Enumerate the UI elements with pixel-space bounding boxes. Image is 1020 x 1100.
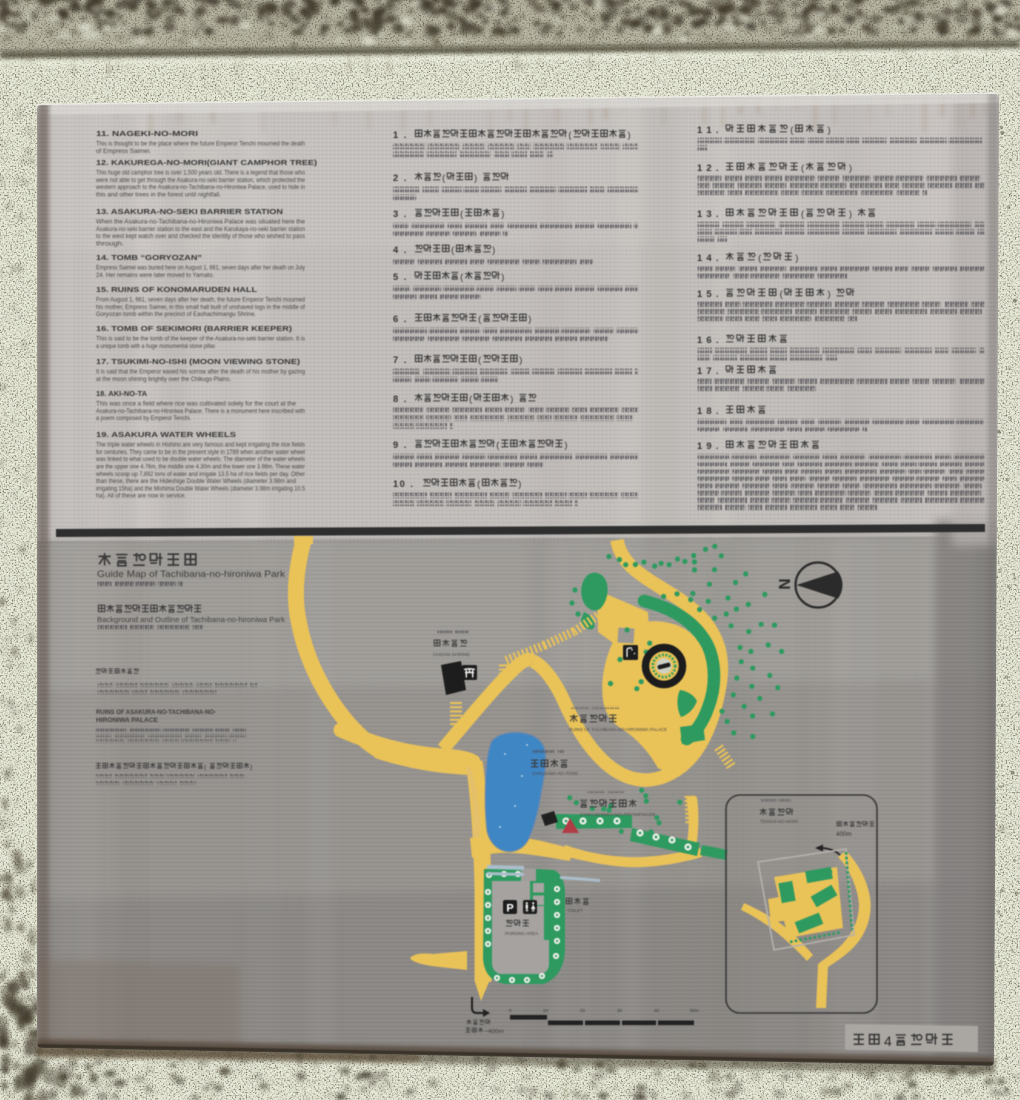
svg-text:10 .: 10 . <box>393 479 415 489</box>
svg-text:8 .: 8 . <box>393 394 408 404</box>
svg-text:400m: 400m <box>836 831 851 838</box>
svg-text:): ) <box>510 394 513 404</box>
svg-text:1 9 .: 1 9 . <box>697 440 719 451</box>
svg-text:CHOAN SHRINE: CHOAN SHRINE <box>433 652 470 657</box>
svg-text:at the moon shining brightly o: at the moon shining brightly over the Ch… <box>96 376 231 383</box>
svg-text:are the upper one 4.76m, the m: are the upper one 4.76m, the middle one … <box>96 464 305 471</box>
svg-text:When the Asakura-no-Tachibana-: When the Asakura-no-Tachibana-no-Hironiw… <box>96 219 305 226</box>
svg-text:The triple water wheels in His: The triple water wheels in Hishino are v… <box>96 442 305 449</box>
svg-text:a poem composed by Emperor Ten: a poem composed by Emperor Tenchi. <box>96 415 191 422</box>
svg-text:TOILET: TOILET <box>567 908 583 913</box>
svg-text:30: 30 <box>617 1008 623 1013</box>
svg-text:PARKING AREA: PARKING AREA <box>505 931 538 936</box>
svg-text:16. TOMB OF SEKIMORI (BARRIER: 16. TOMB OF SEKIMORI (BARRIER KEEPER) <box>96 324 293 333</box>
svg-text:1 4 .: 1 4 . <box>697 252 719 263</box>
svg-text:12. KAKUREGA-NO-MORI(GIANT CAM: 12. KAKUREGA-NO-MORI(GIANT CAMPHOR TREE) <box>96 158 318 167</box>
svg-text:1 2 .: 1 2 . <box>697 162 719 173</box>
svg-text:ha). All of these are now in s: ha). All of these are now in service. <box>96 493 186 500</box>
svg-text:1 .: 1 . <box>393 130 408 140</box>
svg-text:CHIKUSHIMAI-NO-PROMENADE: CHIKUSHIMAI-NO-PROMENADE <box>580 812 656 817</box>
svg-text:): ) <box>518 479 521 489</box>
svg-text:From August 1, 661, seven days: From August 1, 661, seven days after her… <box>96 297 305 304</box>
svg-text:1 7 .: 1 7 . <box>697 365 719 376</box>
svg-text:13. ASAKURA-NO-SEKI BARRIER ST: 13. ASAKURA-NO-SEKI BARRIER STATION <box>96 207 283 216</box>
svg-text:Goryozan tomb within the preci: Goryozan tomb within the precinct of Eao… <box>96 311 256 318</box>
svg-text:): ) <box>501 272 504 282</box>
svg-text:This is thought to be the plac: This is thought to be the place where th… <box>96 141 305 148</box>
svg-text:RUINS OF ASAKURA-NO-TACHIBANA-: RUINS OF ASAKURA-NO-TACHIBANA-NO- <box>96 709 216 716</box>
svg-text:): ) <box>564 440 567 450</box>
svg-text:15. RUINS OF KONOMARUDEN HALL: 15. RUINS OF KONOMARUDEN HALL <box>96 285 257 294</box>
svg-text:4 .: 4 . <box>393 245 408 255</box>
svg-text:western approach to the Asakur: western approach to the Asakura-no-Tachi… <box>95 184 305 191</box>
svg-text:HIRONIWA PALACE: HIRONIWA PALACE <box>96 717 159 724</box>
svg-text:7 .: 7 . <box>393 355 408 365</box>
svg-text:his mother, Empress Saimei, in: his mother, Empress Saimei, in this smal… <box>96 304 305 311</box>
svg-text:40: 40 <box>654 1008 660 1013</box>
svg-text:irrigating 15ha) and the Mishi: irrigating 15ha) and the Mishima Double … <box>96 485 305 492</box>
svg-text:): ) <box>519 355 522 365</box>
svg-text:1 5 .: 1 5 . <box>697 288 719 299</box>
svg-text:This was once a field where ri: This was once a field where rice was cul… <box>96 401 296 408</box>
svg-text:19. ASAKURA WATER WHEELS: 19. ASAKURA WATER WHEELS <box>96 430 236 439</box>
svg-text:a unique tomb with a huge monu: a unique tomb with a huge monumental sto… <box>96 343 216 350</box>
svg-text:24. Her remains were later mov: 24. Her remains were later moved to Yama… <box>96 272 214 279</box>
svg-text:~400m: ~400m <box>484 1029 504 1035</box>
svg-text:20: 20 <box>580 1008 586 1013</box>
svg-text:It is said that the Emperor ea: It is said that the Emperor eased his so… <box>96 369 305 376</box>
svg-text:N: N <box>777 578 794 589</box>
svg-text:1 1 .: 1 1 . <box>697 124 719 135</box>
svg-text:17. TSUKIMI-NO-ISHI (MOON VIEW: 17. TSUKIMI-NO-ISHI (MOON VIEWING STONE) <box>96 357 301 366</box>
svg-text:wheels scoop up 7,892 tons of: wheels scoop up 7,892 tons of water and … <box>95 471 305 478</box>
svg-text:9 .: 9 . <box>393 440 408 450</box>
svg-text:): ) <box>492 245 495 255</box>
svg-text:6 .: 6 . <box>393 314 408 324</box>
svg-text:): ) <box>849 162 852 173</box>
svg-text:Asakura-no-seki barrier statio: Asakura-no-seki barrier station to the e… <box>96 226 305 233</box>
svg-text:50m: 50m <box>690 1008 699 1013</box>
svg-text:1 6 .: 1 6 . <box>697 334 719 345</box>
svg-text:than these, there are the Hide: than these, there are the Hideshige Doub… <box>96 478 296 485</box>
svg-text:TENSHI-NO-MORI: TENSHI-NO-MORI <box>760 819 798 824</box>
svg-text:3 .: 3 . <box>393 209 408 219</box>
svg-text:1 8 .: 1 8 . <box>697 405 719 416</box>
svg-text:RUINS OF TACHIBANA-NO-HIRONIWA: RUINS OF TACHIBANA-NO-HIRONIWA PALACE <box>569 727 667 732</box>
svg-text:P: P <box>506 903 513 915</box>
svg-text:5 .: 5 . <box>393 272 408 282</box>
svg-text:): ) <box>250 764 252 771</box>
svg-text:): ) <box>827 288 830 299</box>
svg-text:This huge old camphor tree is: This huge old camphor tree is over 1,500… <box>96 170 305 177</box>
svg-text:): ) <box>627 130 630 140</box>
svg-text:): ) <box>528 314 531 324</box>
svg-text:Empress Saimei was buried here: Empress Saimei was buried here on August… <box>96 265 306 272</box>
svg-text:to the west kept watch over an: to the west kept watch over and checked … <box>96 233 305 240</box>
svg-text:14. TOMB “GORYOZAN”: 14. TOMB “GORYOZAN” <box>96 253 202 262</box>
svg-text:1 3 .: 1 3 . <box>697 208 719 219</box>
svg-text:4: 4 <box>884 1033 892 1049</box>
svg-text:2 .: 2 . <box>393 173 408 183</box>
svg-text:Guide Map of Tachibana-no-hiro: Guide Map of Tachibana-no-hironiwa Park <box>97 569 286 579</box>
svg-text:were not able to get through t: were not able to get through the Asakura… <box>95 177 305 184</box>
svg-text:was linked to what used to be: was linked to what used to be double wat… <box>95 456 305 463</box>
svg-text:SARUSAWA-NO POND: SARUSAWA-NO POND <box>532 771 579 776</box>
svg-text:): ) <box>501 209 504 219</box>
svg-text:): ) <box>474 173 477 183</box>
svg-text:11. NAGEKI-NO-MORI: 11. NAGEKI-NO-MORI <box>96 129 198 138</box>
svg-text:18. AKI-NO-TA: 18. AKI-NO-TA <box>96 389 148 398</box>
svg-text:10: 10 <box>543 1008 549 1013</box>
svg-text:Background and Outline of Tach: Background and Outline of Tachibana-no-h… <box>97 615 285 624</box>
svg-text:This is said to be the tomb of: This is said to be the tomb of the keepe… <box>96 336 305 343</box>
svg-text:of Empress Saimei.: of Empress Saimei. <box>96 148 151 155</box>
svg-text:this and other trees in the fo: this and other trees in the forest until… <box>96 192 221 199</box>
svg-text:Asakura-no-Tachibana-no-Hironi: Asakura-no-Tachibana-no-Hironiwa Palace.… <box>96 408 305 415</box>
svg-text:for centuries. They came to be: for centuries. They came to be in the pr… <box>96 449 305 456</box>
svg-text:): ) <box>795 252 798 263</box>
svg-text:through.: through. <box>96 241 124 248</box>
svg-text:): ) <box>849 208 852 219</box>
svg-text:): ) <box>827 124 830 135</box>
